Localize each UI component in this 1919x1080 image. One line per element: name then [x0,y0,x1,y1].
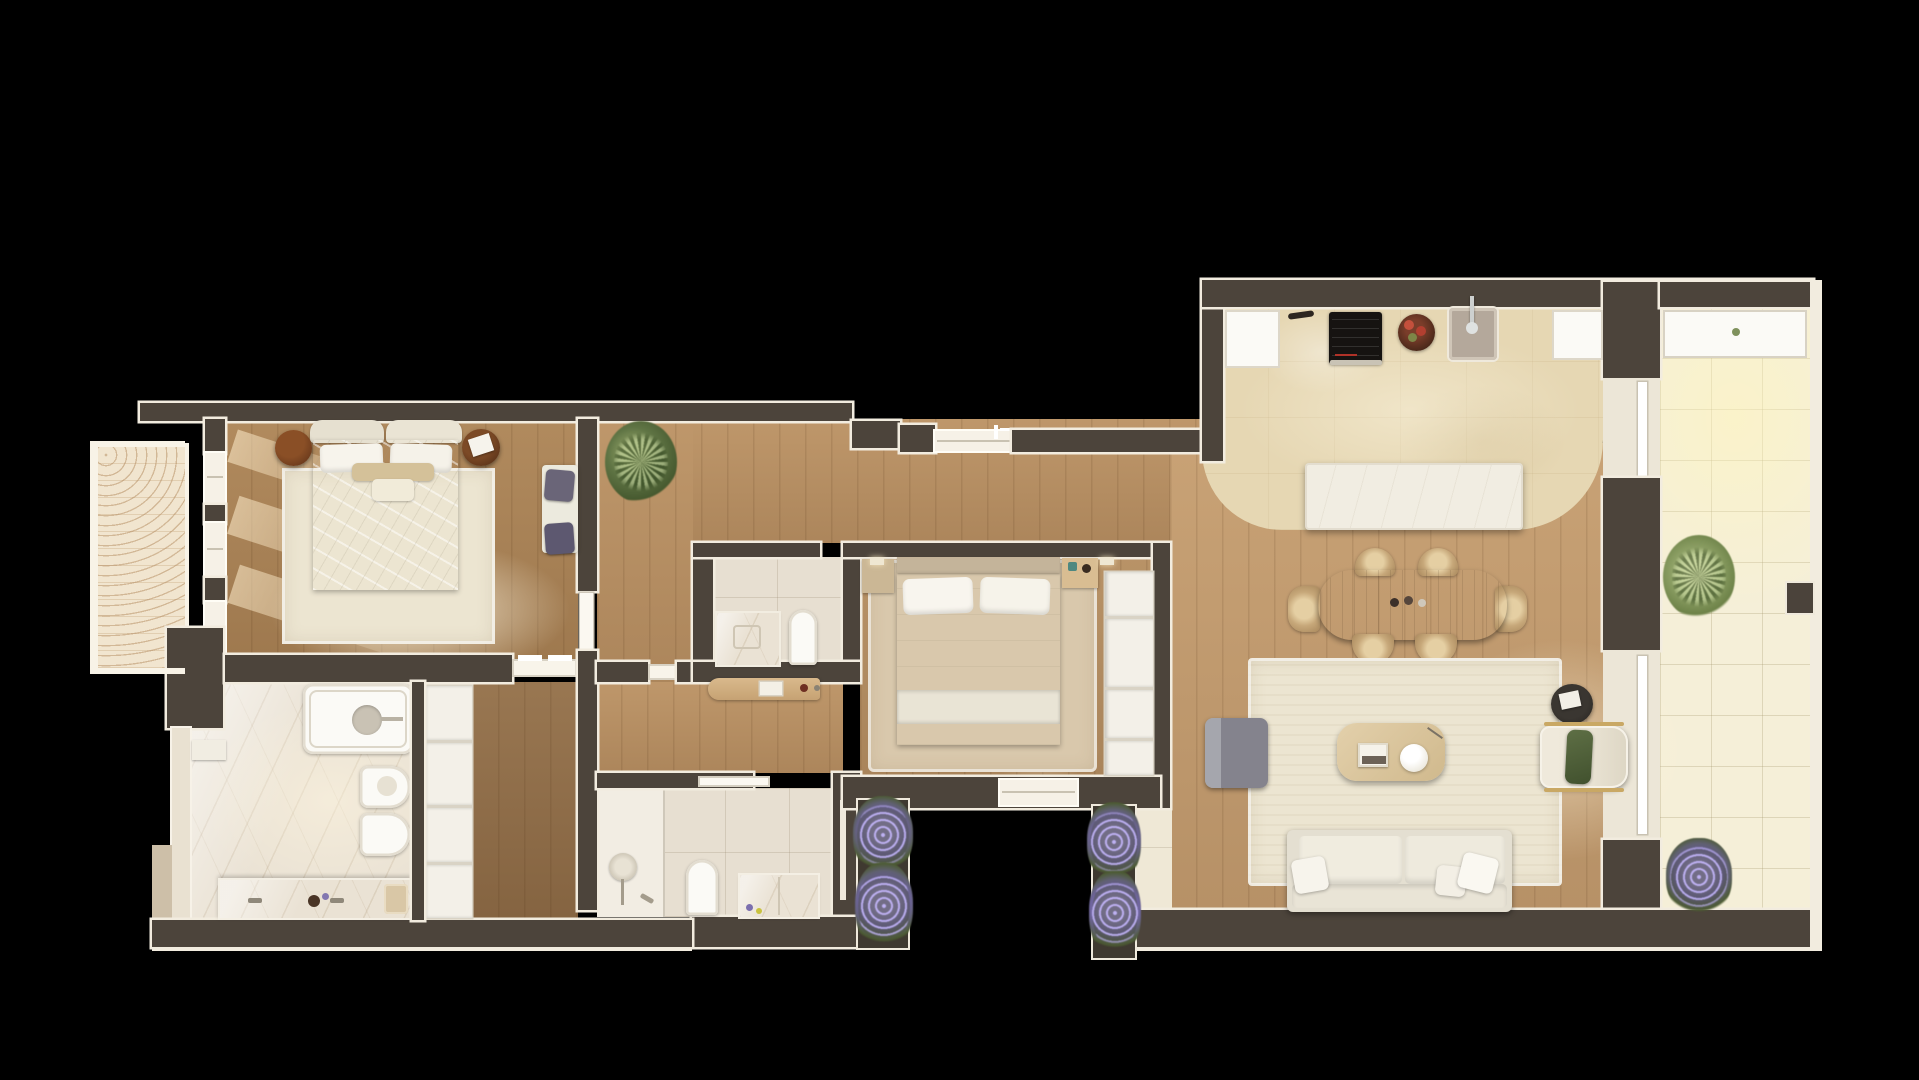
dining-chair-head-left [1288,586,1320,632]
balcony-rail-top [90,441,185,447]
west-wall-lower [172,728,190,920]
bedroom-window-1 [205,453,225,505]
entry-niche-wall [852,421,900,448]
wardrobe-cell-2 [424,743,472,805]
dressing-corridor-floor [472,682,578,920]
fruit-red-1 [1404,320,1414,330]
southwest-bottom-wall [152,920,692,947]
terrace-north-wall [1660,282,1813,307]
bed2-closet-cell-4 [1105,741,1153,775]
bed2-sconce-right [1100,557,1114,565]
desk-knob-icon [814,685,820,691]
shower-zone-floor [597,788,665,917]
wardrobe-cell-1 [424,686,472,740]
corridor-wall-a [597,662,648,682]
wc-east-wall [843,543,860,677]
bed2-south-window [1000,780,1077,805]
dining-table [1318,570,1507,640]
bath2-vanity-seam [778,877,780,915]
table-glass-icon [1418,599,1426,607]
corridor-double-door [648,664,677,680]
bed2-north-wall [843,543,1160,557]
bed2-folded-blanket [897,690,1060,724]
sink-faucet-head-icon [1466,322,1478,334]
hob-red-indicator [1335,354,1357,356]
terrace-grass-plant [1663,535,1735,619]
hob-handle-bar [1330,360,1382,365]
bottom-edge-west [152,947,692,951]
kitchen-board [1225,310,1280,368]
kitchen-island [1305,463,1523,530]
bedroom-bathroom-wall [225,655,512,682]
bedroom-east-wall-upper [578,419,597,591]
armchair-green-cushion [1565,729,1594,784]
bench-pillow-top [544,469,576,502]
terrace-door2-leaf [1638,656,1647,834]
living-east-wall-b [1603,478,1660,650]
coffee-table [1337,723,1445,781]
terrace-lavender-pot [1666,838,1732,916]
bath2-south-wall [692,917,860,947]
balcony-rail-bottom [90,668,185,674]
terrace-ac-unit [1787,583,1813,613]
hallway-potted-plant [605,421,677,503]
north-wall-step [900,425,935,452]
bed2-sconce-left [870,557,884,565]
entry-window-crank-icon2 [1000,428,1010,431]
kitchen-appliance [1552,310,1603,360]
vanity-faucet-1-icon [248,898,262,903]
bottom-edge-east [1133,947,1818,951]
vanity-accessory-flower [322,893,329,900]
living-east-wall-a [1603,282,1660,378]
corridor-wall-b [677,662,693,682]
bathroom-shelf [192,740,226,760]
wc-vanity-basin-icon [733,625,761,649]
terrace-door1-threshold [1603,378,1660,478]
terrace-planter-sprig [1732,328,1740,336]
wc-toilet [789,610,817,665]
bath2-toilet [686,860,718,915]
fruit-red-2 [1416,326,1426,336]
bed2-pillow-left [902,577,973,615]
floor-plan-stage [0,0,1919,1080]
nightstand-left [275,430,312,466]
bidet-bowl-icon [377,776,397,796]
dressing-door-leaf-b [548,655,572,661]
master-bedroom-door-leaf [580,593,593,651]
bed2-closet-cell-1 [1105,572,1153,616]
bath2-flower-purple [746,904,753,911]
bed2-east-wall [1153,543,1170,808]
kitchen-west-wall [1202,283,1223,461]
bath2-towel-rail [698,776,770,787]
armchair-frame-gold [1544,722,1624,726]
shower-arm-icon [621,879,624,905]
armchair-frame-gold-2 [1544,788,1624,792]
sofa-pillow-left [1290,855,1329,894]
living-east-wall-c [1603,840,1660,910]
fruit-green [1408,333,1417,342]
bed-small-pillow [372,479,414,501]
bath2-east-glazing [840,800,846,900]
west-wall-top [205,419,225,453]
desk-tray [760,682,782,695]
bath2-soap-yellow [756,908,762,914]
bench-pillow-bottom [544,522,575,555]
south-bottom-wall-east [1133,910,1818,947]
coffee-table-book-dark [1362,756,1386,764]
ensuite-toilet [360,813,410,856]
table-candles-icon-2 [1404,596,1413,605]
bedroom-window-2 [205,523,225,578]
dressing-door-leaf-a [518,655,542,661]
tub-wardrobe-wall [412,682,424,920]
bed2-pillow-right [979,577,1050,615]
balcony-rail-left [90,443,98,673]
nightstand-teal-item [1068,562,1077,571]
vanity-towel [384,884,408,914]
entry-window [935,431,1012,451]
bed2-headboard [897,557,1060,573]
bathtub-faucet-icon [381,717,403,721]
wc-north-wall [693,543,820,557]
north-wall-hall [1012,430,1202,452]
bed2-closet-cell-3 [1105,690,1153,738]
coffee-table-sphere-lamp [1400,744,1428,772]
west-wall-pier-1 [205,505,225,523]
bathtub-drain [352,705,382,735]
vanity-faucet-2-icon [330,898,344,903]
bed2-closet-cell-2 [1105,619,1153,687]
wardrobe-cell-4 [424,865,472,918]
terrace-door1-leaf [1638,382,1647,476]
southwest-corner-block [167,628,223,728]
shower-head-icon [609,853,637,881]
wardrobe-cell-3 [424,808,472,862]
table-candles-icon [1390,598,1399,607]
planter-west-lavender-2 [855,862,913,950]
terrace-east-edge [1810,280,1822,951]
planter-east-lavender-2 [1089,870,1141,956]
bedroom-east-wall-lower [578,651,597,910]
entry-window-crank-icon [994,425,998,439]
nightstand-dark-item [1082,564,1091,573]
west-wall-pier-2 [205,578,225,602]
hob-grate-lines [1332,318,1379,356]
north-wall-west-wing [140,403,852,421]
dressing-double-door [512,659,577,677]
gray-ottoman [1205,718,1268,788]
desk-bottle-icon [800,684,808,692]
vanity-accessory-dark [308,895,320,907]
